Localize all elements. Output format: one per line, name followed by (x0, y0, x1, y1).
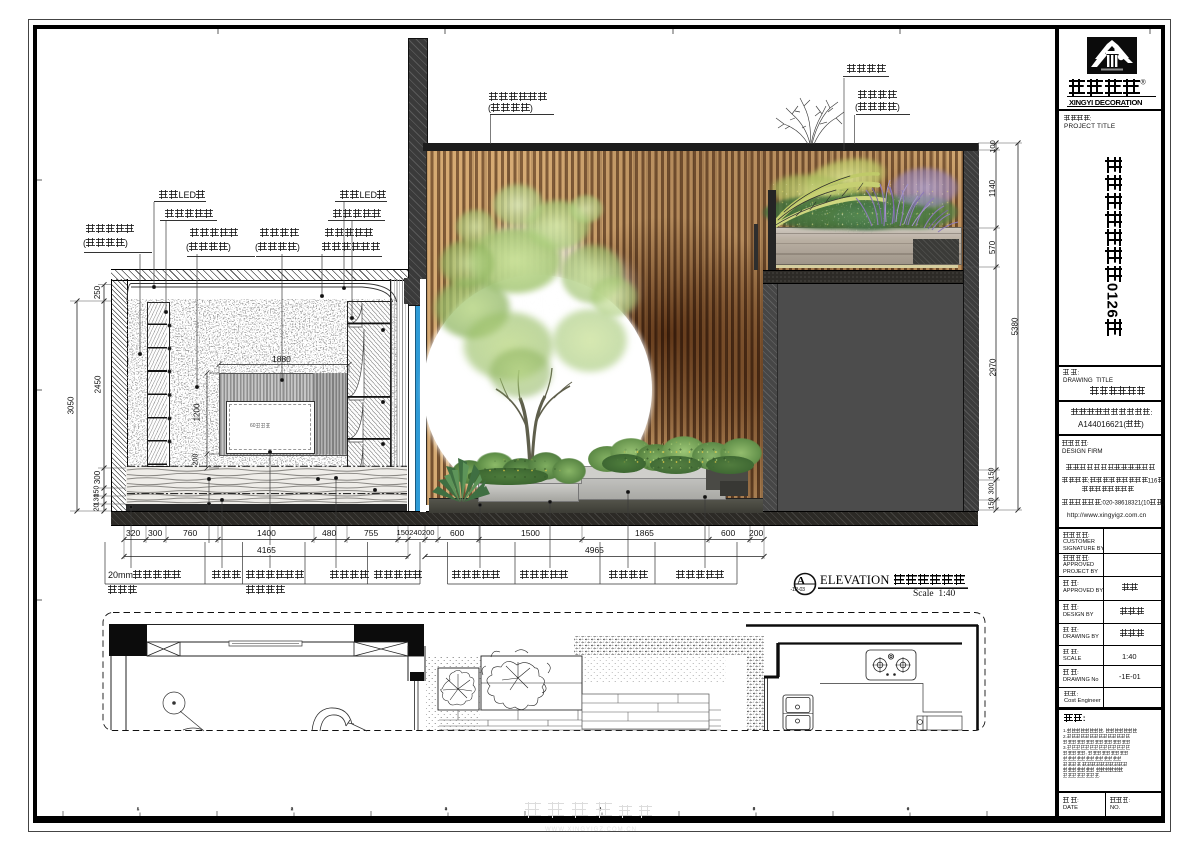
svg-text:3: 3 (445, 807, 447, 811)
svg-text:6: 6 (907, 807, 909, 811)
svg-text:5: 5 (753, 807, 755, 811)
svg-text:1: 1 (137, 807, 139, 811)
svg-text:2: 2 (291, 807, 293, 811)
